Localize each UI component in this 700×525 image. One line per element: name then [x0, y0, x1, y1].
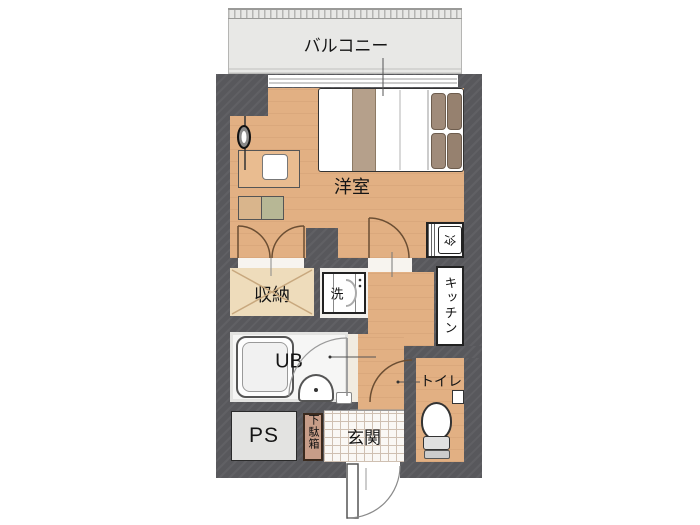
western-room-label: 洋室: [334, 173, 370, 199]
unit-bath-label: UB: [275, 351, 303, 374]
cabinet-accent: [261, 197, 283, 219]
bath-counter-box: [336, 392, 352, 404]
bed-blanket-band: [352, 89, 376, 171]
storage-label: 収納: [254, 281, 290, 307]
balcony-railing: [228, 8, 462, 19]
toilet-paper-holder: [452, 390, 464, 404]
pillar-wall: [306, 228, 338, 260]
pillow: [447, 93, 462, 130]
toilet-partition-wall: [404, 402, 416, 462]
toilet-tank: [423, 436, 450, 450]
pillow: [447, 133, 462, 169]
pipe-space-label: PS: [249, 424, 279, 448]
toilet-base: [424, 450, 450, 459]
fridge-hinge-strip: [428, 224, 437, 256]
chair: [262, 154, 288, 180]
corner-wall-block: [216, 74, 268, 116]
washing-machine: [322, 272, 366, 314]
sink-faucet-dot: [314, 388, 318, 392]
fridge-label: 冷: [441, 234, 458, 246]
shoe-box-label: 下駄箱: [306, 414, 320, 450]
hallway-floor-lower: [358, 334, 404, 410]
kitchen-label: キッチン: [441, 276, 460, 336]
toilet-bowl: [421, 402, 452, 440]
fridge-inner-box: 冷: [438, 226, 462, 254]
balcony-window: [268, 75, 458, 87]
kitchen-counter: キッチン: [436, 266, 464, 346]
washer-panel-line: [355, 274, 356, 312]
balcony-label: バルコニー: [304, 32, 389, 57]
kitchen-bottom-wall: [404, 346, 482, 358]
entrance-opening: [346, 462, 400, 478]
pillow: [431, 133, 446, 169]
entrance-label: 玄関: [347, 424, 381, 449]
storage-door-threshold: [238, 258, 304, 268]
floorplan: バルコニー 冷 洗 キッチン: [0, 0, 700, 525]
washer-label: 洗: [330, 284, 343, 303]
pillow: [431, 93, 446, 130]
toilet-label: トイレ: [420, 371, 462, 391]
room-door-threshold: [368, 258, 412, 272]
